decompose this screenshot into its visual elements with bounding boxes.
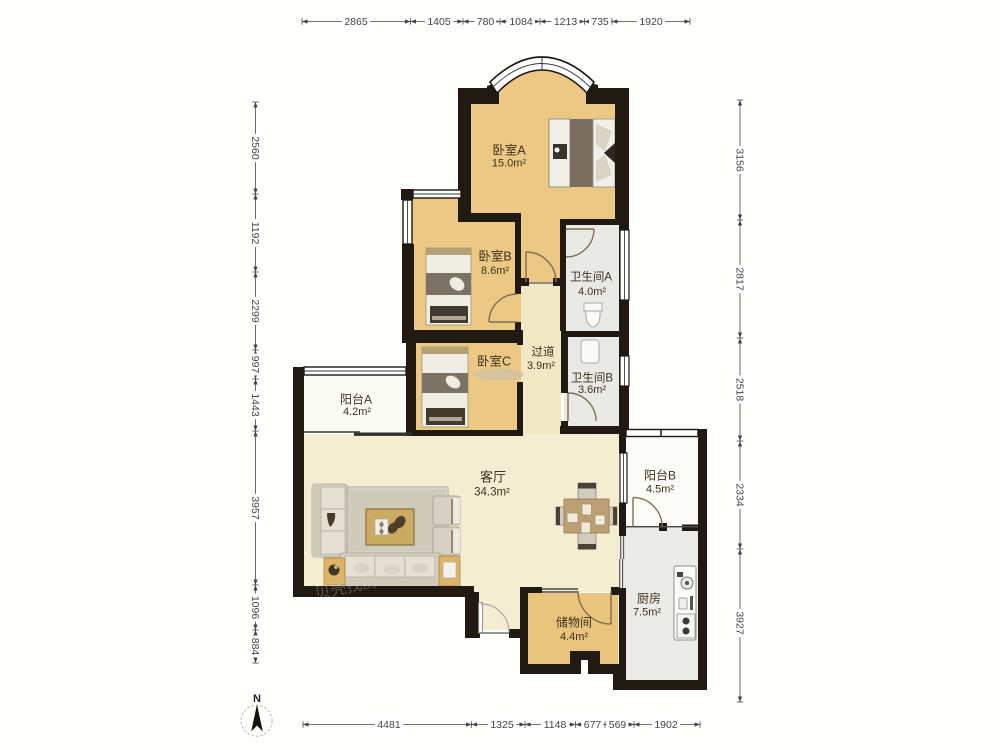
svg-text:1443: 1443	[249, 393, 261, 417]
svg-text:4.4m²: 4.4m²	[560, 631, 588, 643]
svg-text:卧室B: 卧室B	[478, 249, 511, 264]
svg-text:客厅: 客厅	[480, 470, 506, 485]
svg-text:569: 569	[609, 719, 627, 731]
svg-text:2560: 2560	[249, 136, 261, 160]
svg-text:3.9m²: 3.9m²	[527, 360, 555, 372]
svg-text:阳台A: 阳台A	[340, 392, 372, 407]
svg-text:1920: 1920	[639, 16, 663, 28]
svg-text:3927: 3927	[733, 611, 745, 635]
svg-text:1148: 1148	[544, 719, 567, 731]
svg-text:15.0m²: 15.0m²	[492, 158, 527, 170]
svg-text:780: 780	[477, 16, 495, 28]
svg-text:2334: 2334	[733, 483, 745, 507]
svg-text:1902: 1902	[654, 719, 678, 731]
svg-text:7.5m²: 7.5m²	[633, 607, 661, 619]
svg-text:N: N	[253, 693, 261, 705]
svg-text:4481: 4481	[377, 719, 401, 731]
svg-text:2817: 2817	[733, 267, 745, 291]
svg-text:997: 997	[249, 356, 261, 374]
svg-text:3156: 3156	[733, 148, 745, 172]
svg-text:1325: 1325	[490, 719, 514, 731]
svg-text:卫生间B: 卫生间B	[571, 371, 613, 385]
svg-text:4.0m²: 4.0m²	[578, 286, 606, 298]
svg-text:1213: 1213	[554, 16, 578, 28]
svg-text:884: 884	[249, 638, 261, 656]
svg-text:卧室A: 卧室A	[492, 143, 526, 158]
svg-text:2865: 2865	[344, 16, 368, 28]
svg-text:735: 735	[591, 16, 609, 28]
svg-text:1405: 1405	[427, 16, 451, 28]
svg-text:3957: 3957	[249, 496, 261, 520]
svg-text:3.6m²: 3.6m²	[578, 384, 606, 396]
svg-text:677: 677	[584, 719, 602, 731]
svg-text:8.6m²: 8.6m²	[481, 265, 509, 277]
svg-text:4.2m²: 4.2m²	[343, 406, 371, 418]
svg-text:阳台B: 阳台B	[644, 468, 676, 483]
svg-text:储物间: 储物间	[556, 615, 592, 630]
svg-text:4.5m²: 4.5m²	[646, 484, 674, 496]
svg-text:1096: 1096	[249, 596, 261, 620]
svg-text:卧室C: 卧室C	[477, 354, 511, 369]
svg-text:34.3m²: 34.3m²	[474, 487, 510, 499]
svg-text:2518: 2518	[733, 378, 745, 402]
svg-text:2299: 2299	[249, 299, 261, 323]
svg-text:1192: 1192	[249, 222, 261, 245]
svg-text:厨房: 厨房	[637, 591, 661, 606]
svg-text:卫生间A: 卫生间A	[570, 270, 612, 284]
svg-text:1084: 1084	[509, 16, 533, 28]
svg-text:过道: 过道	[532, 345, 555, 359]
